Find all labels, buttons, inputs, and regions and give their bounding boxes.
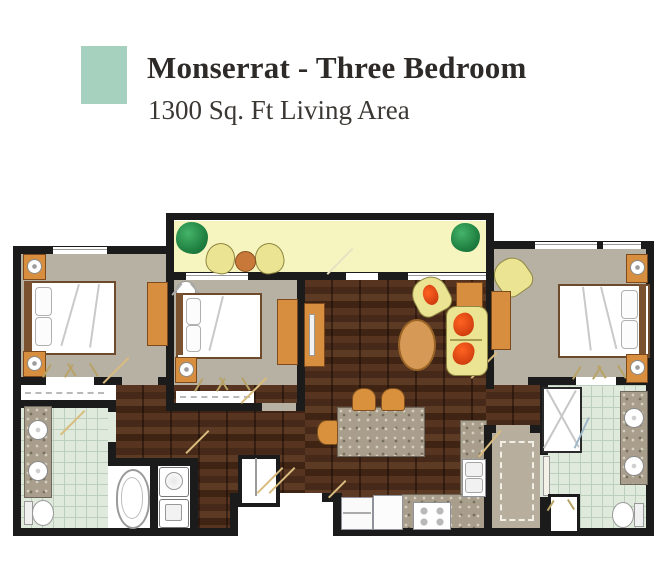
balcony-door-gap	[346, 273, 378, 280]
bedroom3-window-2	[603, 242, 641, 249]
dresser	[147, 282, 168, 346]
wall	[13, 246, 21, 536]
bedroom2-door-gap	[262, 403, 296, 411]
dryer-door	[165, 504, 182, 521]
bed-pillow	[621, 290, 638, 319]
table-lamp	[179, 362, 194, 377]
vanity-sink	[624, 408, 644, 428]
dining-chair	[317, 420, 338, 445]
vanity-sink	[624, 456, 644, 476]
bed-pillow	[621, 320, 638, 349]
sink-basin	[465, 462, 483, 477]
bed-pillow	[35, 287, 52, 316]
master-bath-door-gap	[108, 412, 116, 442]
dining-island	[337, 407, 425, 457]
page-title: Monserrat - Three Bedroom	[147, 50, 527, 86]
bathtub-inner	[121, 477, 143, 519]
toilet-bowl	[32, 500, 54, 526]
bed-headboard	[24, 281, 32, 351]
bed-pillow	[35, 317, 52, 346]
linen-closet	[238, 455, 280, 507]
bedroom3-door-gap	[494, 377, 528, 385]
coffee-table	[398, 319, 436, 371]
wall	[150, 458, 158, 536]
dresser	[491, 291, 511, 350]
wall	[166, 213, 494, 220]
end-table	[456, 282, 483, 308]
stove	[413, 502, 451, 530]
bedroom3-window	[535, 242, 597, 249]
patio-table	[235, 251, 256, 272]
toilet-tank	[634, 503, 644, 527]
table-lamp	[27, 259, 42, 274]
bed-pillow	[186, 298, 201, 325]
bedroom2-closet-rod	[180, 396, 250, 398]
refrigerator	[341, 497, 373, 530]
page-subtitle: 1300 Sq. Ft Living Area	[148, 95, 410, 126]
bed-pillow	[186, 325, 201, 352]
toilet-bowl	[612, 502, 634, 528]
bed-headboard	[176, 293, 183, 355]
living-balcony-window	[408, 273, 486, 280]
bedroom3-closet-gap	[576, 377, 616, 385]
page: Monserrat - Three Bedroom 1300 Sq. Ft Li…	[0, 0, 660, 575]
kitchen-cabinet	[373, 495, 403, 530]
dining-chair	[381, 388, 405, 411]
potted-tree-2	[451, 223, 480, 252]
wall	[13, 528, 238, 536]
tv-screen	[309, 314, 315, 356]
sink-basin	[465, 478, 483, 493]
refrigerator-divider	[343, 512, 371, 514]
vanity-sink	[28, 461, 48, 481]
vanity-sink	[28, 420, 48, 440]
dining-chair	[352, 388, 376, 411]
bed-headboard	[639, 284, 646, 354]
dresser	[277, 299, 298, 365]
bedroom1-closet-gap	[46, 377, 94, 385]
bedroom2-balcony-slider	[186, 273, 248, 280]
bedroom1-window	[53, 247, 107, 254]
linen-closet-divider	[255, 458, 257, 496]
bedroom1-door-gap	[122, 377, 158, 385]
entry-door-gap	[280, 493, 322, 502]
closet-shelf-outline	[500, 441, 534, 521]
sofa-seat-line	[450, 339, 482, 341]
closet-bath-door-leaf	[543, 456, 550, 496]
legend-swatch	[81, 46, 127, 104]
washer-drum	[165, 472, 183, 490]
table-lamp	[630, 260, 645, 275]
table-lamp	[27, 356, 42, 371]
wall	[190, 458, 198, 536]
bedroom1-closet-rod	[25, 392, 104, 394]
table-lamp	[630, 360, 645, 375]
potted-tree	[176, 222, 208, 254]
